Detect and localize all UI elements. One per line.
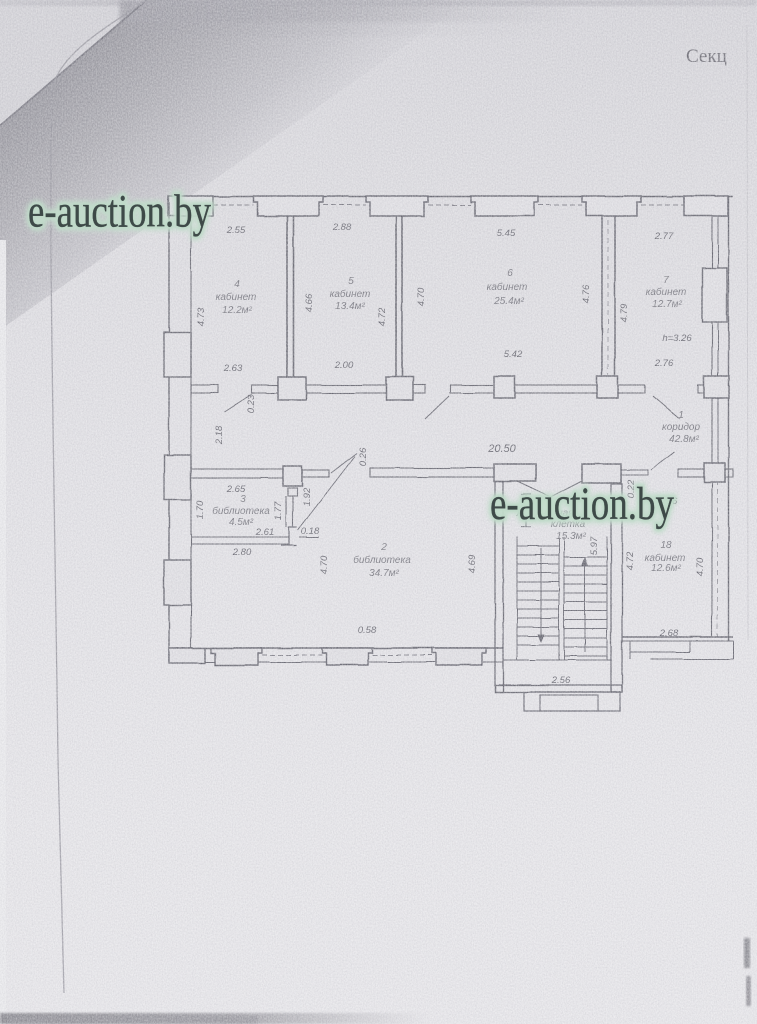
svg-text:e-auction.by: e-auction.by (28, 186, 211, 238)
svg-text:e-auction.by: e-auction.by (490, 478, 674, 530)
